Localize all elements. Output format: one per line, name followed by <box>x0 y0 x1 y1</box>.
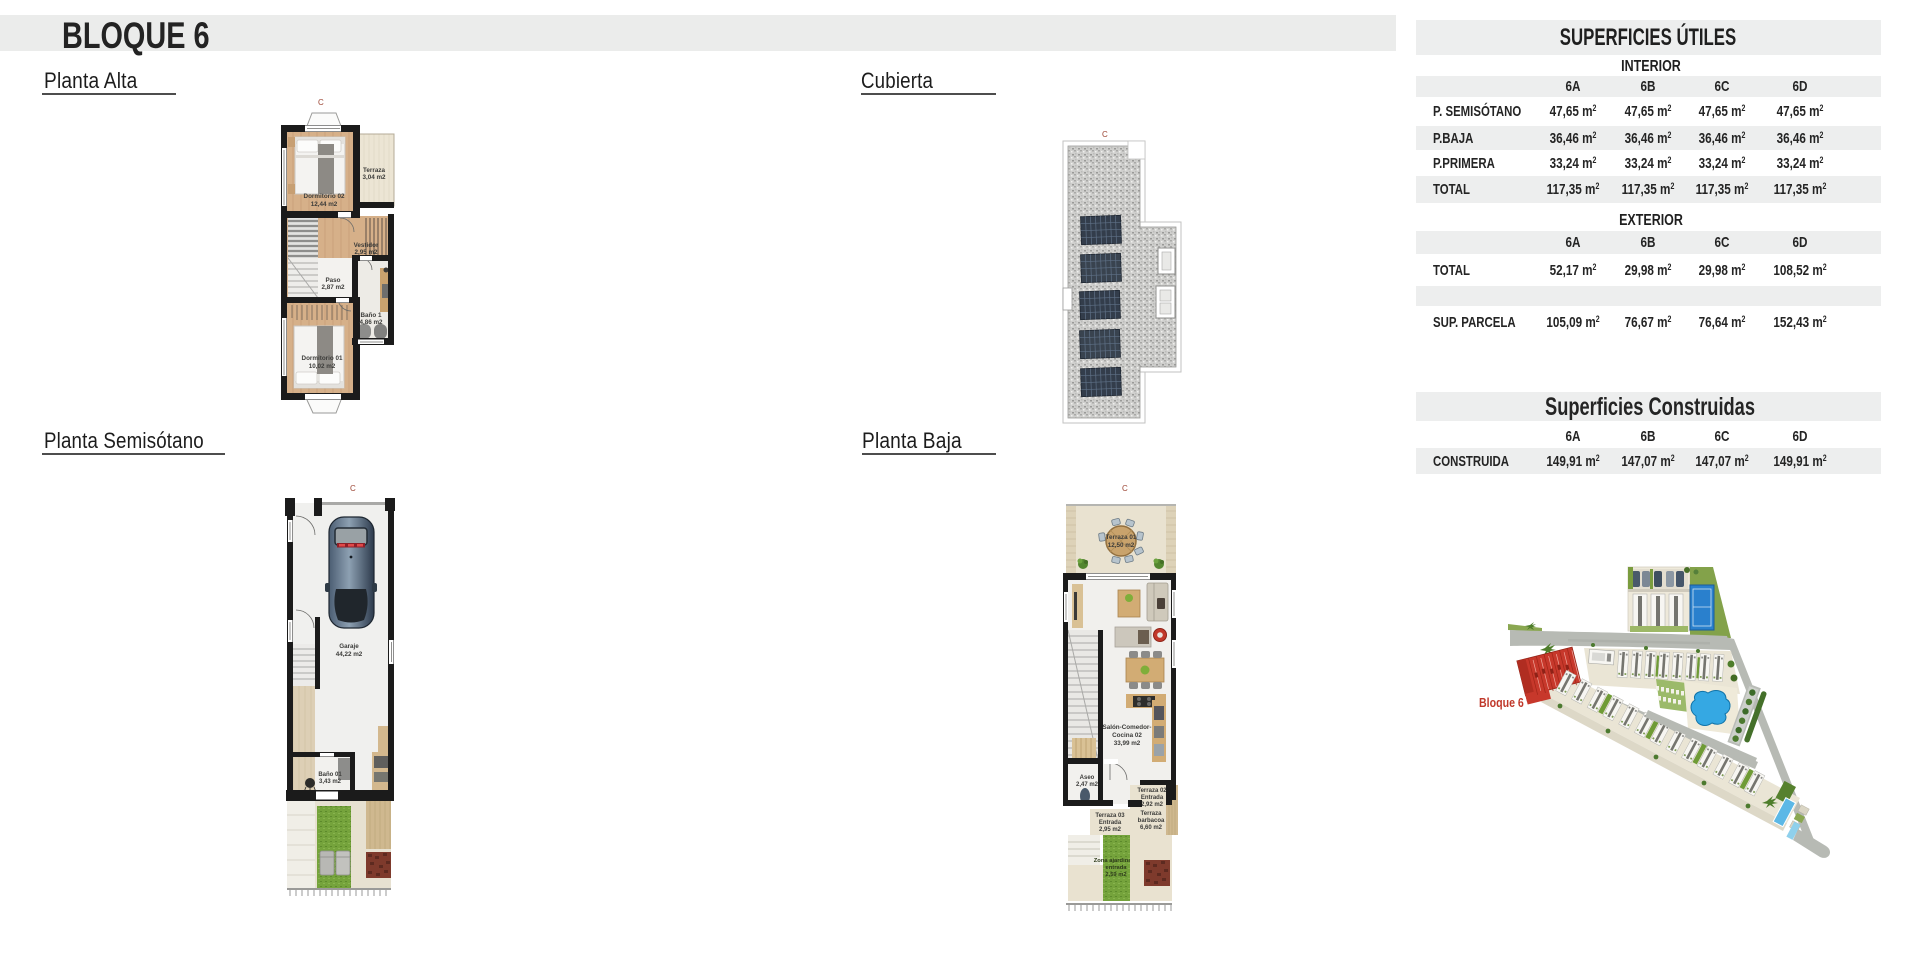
svg-text:12,50 m2: 12,50 m2 <box>1108 542 1135 549</box>
svg-text:2,47 m2: 2,47 m2 <box>1076 782 1099 788</box>
svg-text:C: C <box>1122 484 1128 493</box>
svg-text:Terraza 02: Terraza 02 <box>1137 788 1167 794</box>
svg-text:Bloque 6: Bloque 6 <box>1479 696 1524 710</box>
svg-text:entrada: entrada <box>1106 865 1128 871</box>
svg-text:12,44 m2: 12,44 m2 <box>311 201 338 208</box>
svg-text:33,99 m2: 33,99 m2 <box>1114 740 1141 747</box>
svg-text:Aseo: Aseo <box>1080 775 1095 781</box>
svg-text:Garaje: Garaje <box>339 643 359 650</box>
svg-text:Terraza 03: Terraza 03 <box>1095 813 1125 819</box>
svg-text:Dormitorio 01: Dormitorio 01 <box>302 355 343 362</box>
svg-text:2,95 m2: 2,95 m2 <box>354 249 378 256</box>
svg-text:3,04 m2: 3,04 m2 <box>362 174 386 181</box>
svg-text:Terraza 01: Terraza 01 <box>1106 534 1137 541</box>
svg-text:Vestidor: Vestidor <box>354 242 379 249</box>
svg-text:2,92 m2: 2,92 m2 <box>1141 802 1164 808</box>
svg-text:barbacoa: barbacoa <box>1138 818 1165 824</box>
svg-text:C: C <box>318 98 324 107</box>
svg-text:4,86 m2: 4,86 m2 <box>359 319 383 326</box>
svg-text:Baño 1: Baño 1 <box>361 312 382 319</box>
svg-text:Dormitorio 02: Dormitorio 02 <box>304 193 345 200</box>
svg-text:2,95 m2: 2,95 m2 <box>1099 827 1122 833</box>
svg-text:Entrada: Entrada <box>1099 820 1122 826</box>
svg-text:C: C <box>1102 130 1108 139</box>
svg-text:Terraza: Terraza <box>1141 811 1163 817</box>
svg-text:10,02 m2: 10,02 m2 <box>309 363 336 370</box>
svg-text:6,60 m2: 6,60 m2 <box>1140 825 1163 831</box>
svg-text:Salón-Comedor-: Salón-Comedor- <box>1103 724 1152 731</box>
svg-text:2,59 m2: 2,59 m2 <box>1105 872 1126 878</box>
svg-text:Cocina 02: Cocina 02 <box>1112 732 1142 739</box>
svg-text:Paso: Paso <box>325 277 340 284</box>
svg-text:Entrada: Entrada <box>1141 795 1164 801</box>
svg-text:3,43 m2: 3,43 m2 <box>319 779 342 785</box>
svg-text:2,87 m2: 2,87 m2 <box>321 284 345 291</box>
svg-text:Terraza: Terraza <box>363 167 385 174</box>
svg-text:C: C <box>350 484 356 493</box>
svg-text:44,22 m2: 44,22 m2 <box>336 651 363 658</box>
svg-text:Baño 01: Baño 01 <box>318 772 342 778</box>
